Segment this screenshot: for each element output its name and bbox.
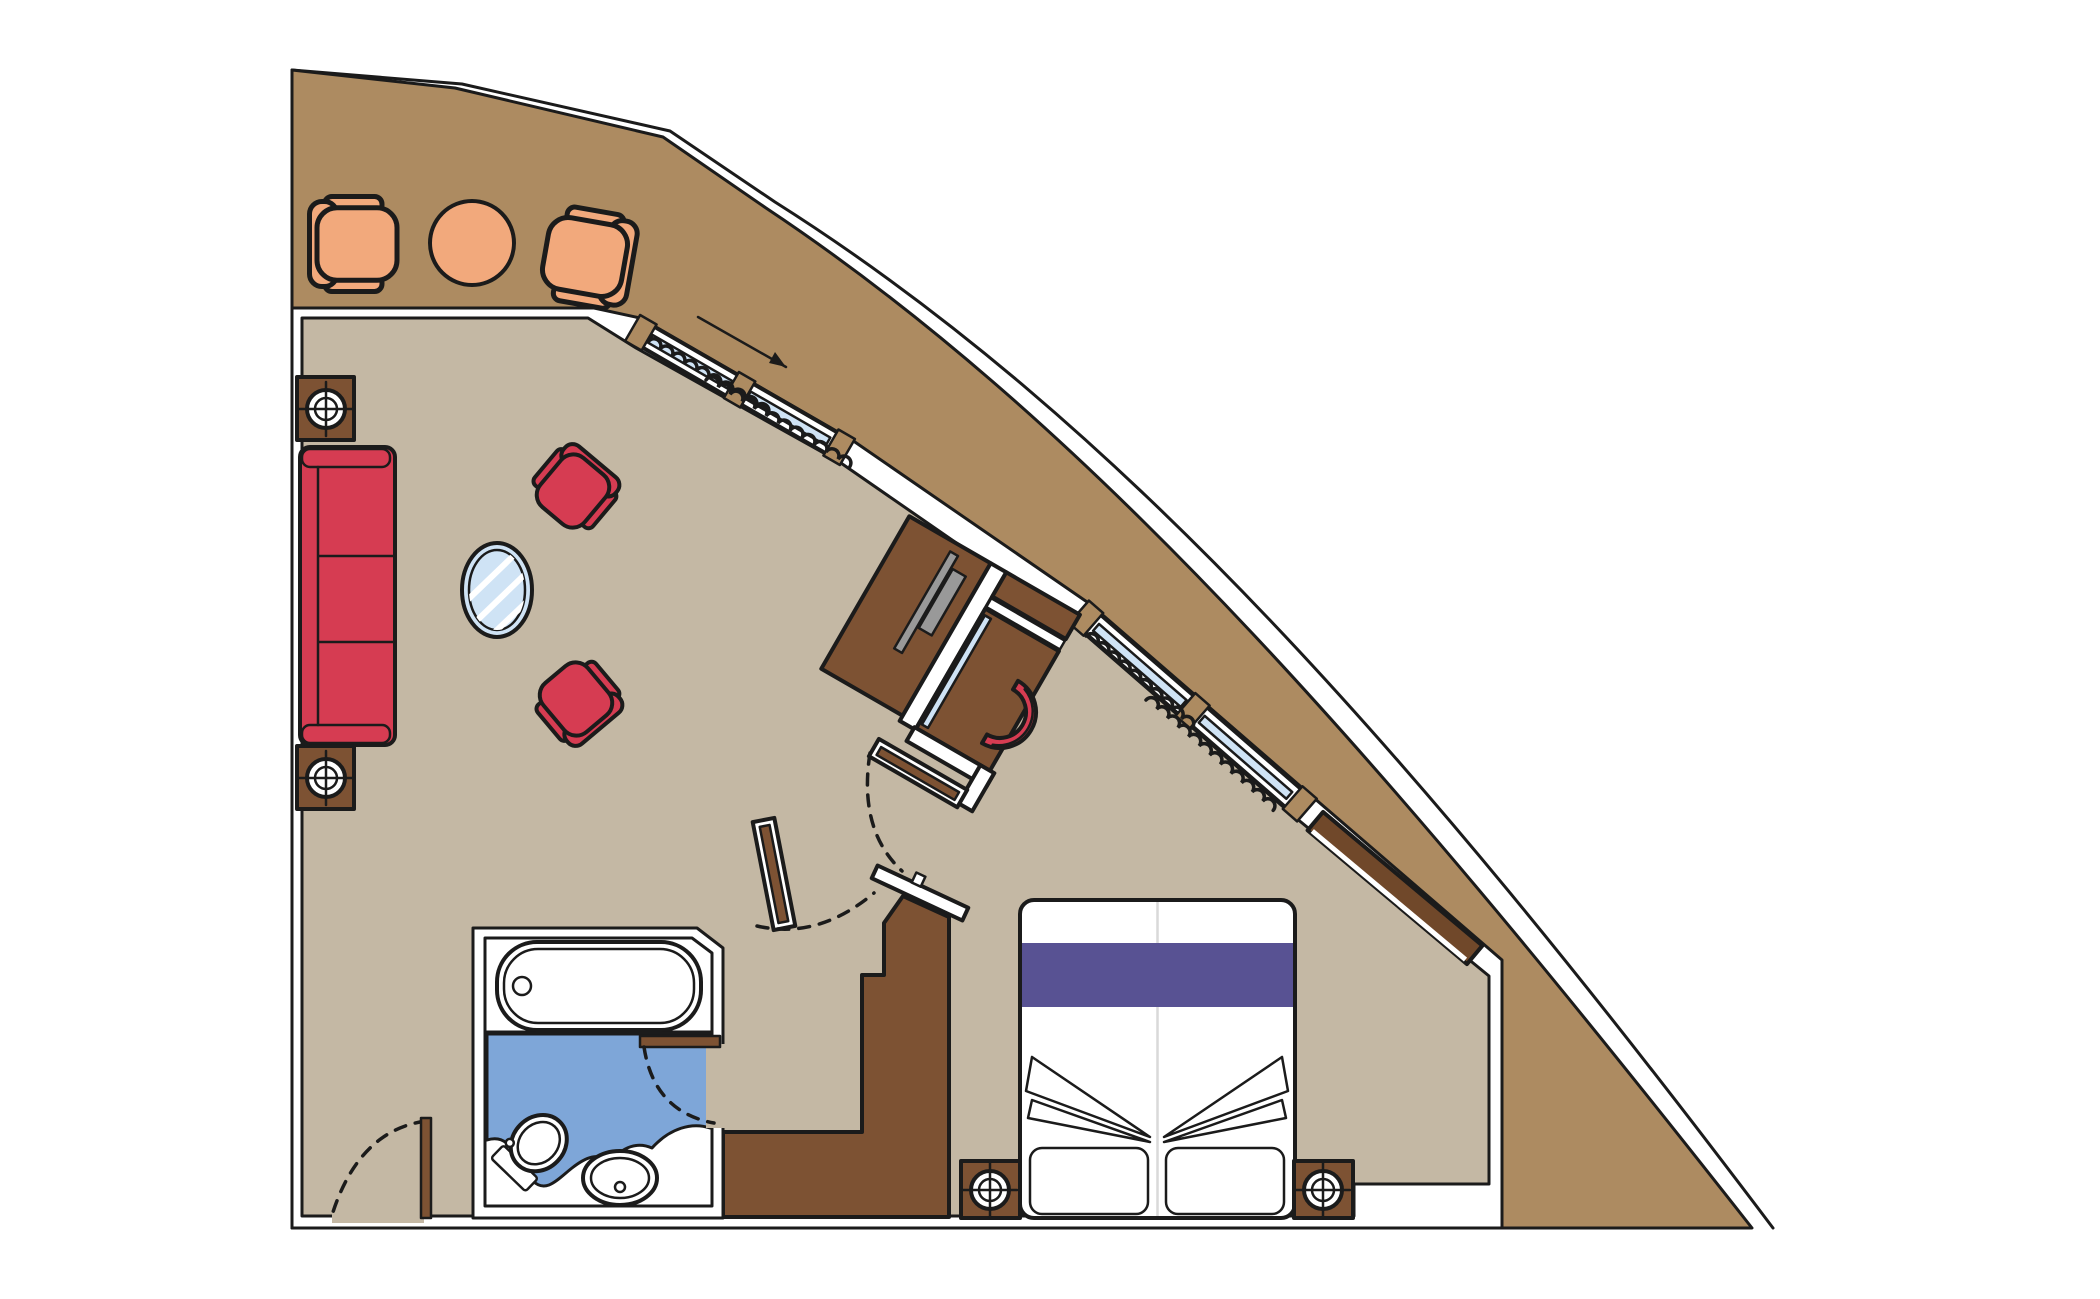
side-table-bottom [297,746,354,809]
entrance-door-leaf [421,1118,431,1218]
double-bed [1020,900,1295,1218]
pillow-right [1166,1148,1284,1214]
pillow-left [1030,1148,1148,1214]
bed-runner [1022,943,1293,1007]
entrance-threshold [332,1207,424,1223]
sofa [300,447,395,745]
side-table-top [297,377,354,440]
balcony-chair-left [310,197,398,292]
bathroom [473,928,730,1218]
bathroom-door-leaf [640,1036,720,1047]
floor-plan-drawing [0,0,2100,1299]
washbasin [583,1151,657,1205]
bathtub [497,942,701,1030]
nightstand-right [1294,1161,1353,1218]
bathroom-door-opening [706,1044,730,1128]
balcony-round-table [430,201,514,285]
floor-plan-canvas [0,0,2100,1299]
nightstand-left [961,1161,1020,1218]
